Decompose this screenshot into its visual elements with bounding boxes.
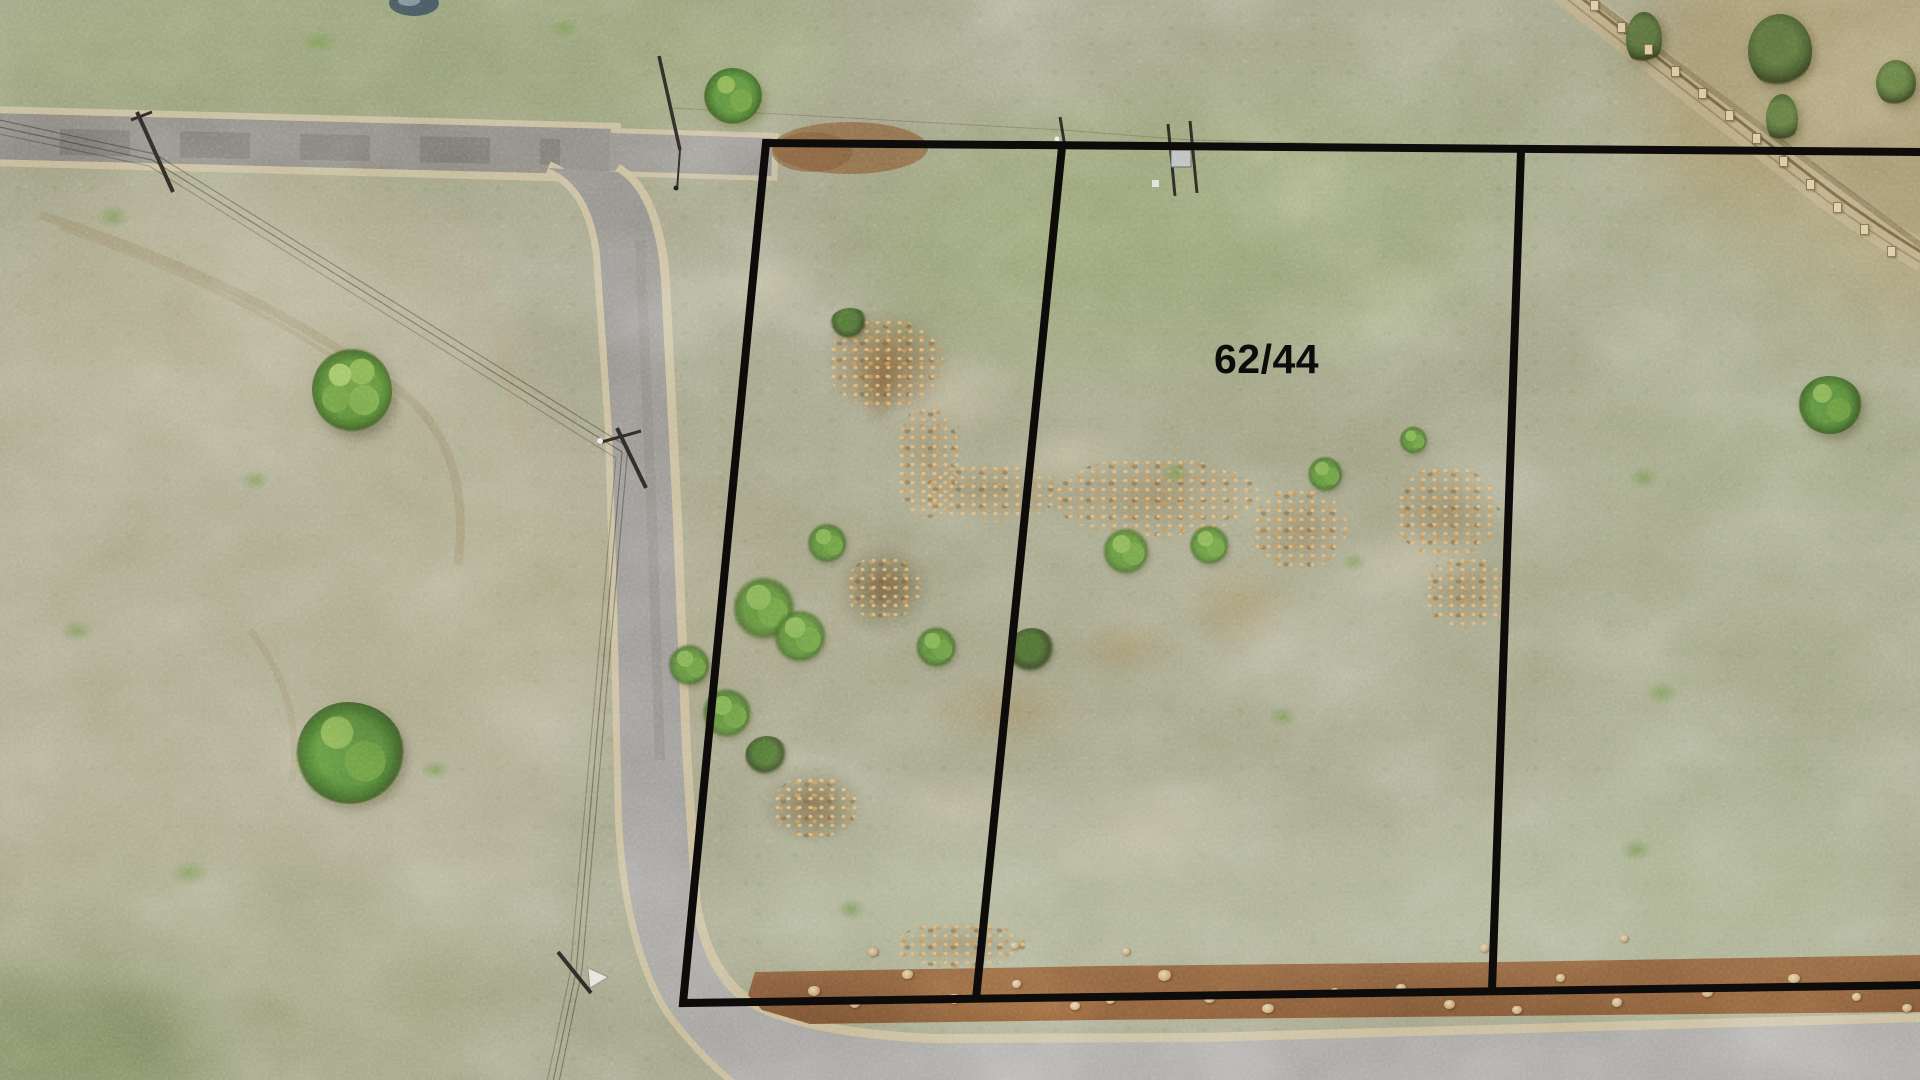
plot-boundary-outline [683,143,1920,1003]
plot-divider-line-1 [976,147,1062,999]
plot-divider-line-2 [1492,151,1521,990]
aerial-photo: 62/44 [0,0,1920,1080]
plot-boundary-overlay [0,0,1920,1080]
plot-number-label: 62/44 [1214,339,1354,380]
